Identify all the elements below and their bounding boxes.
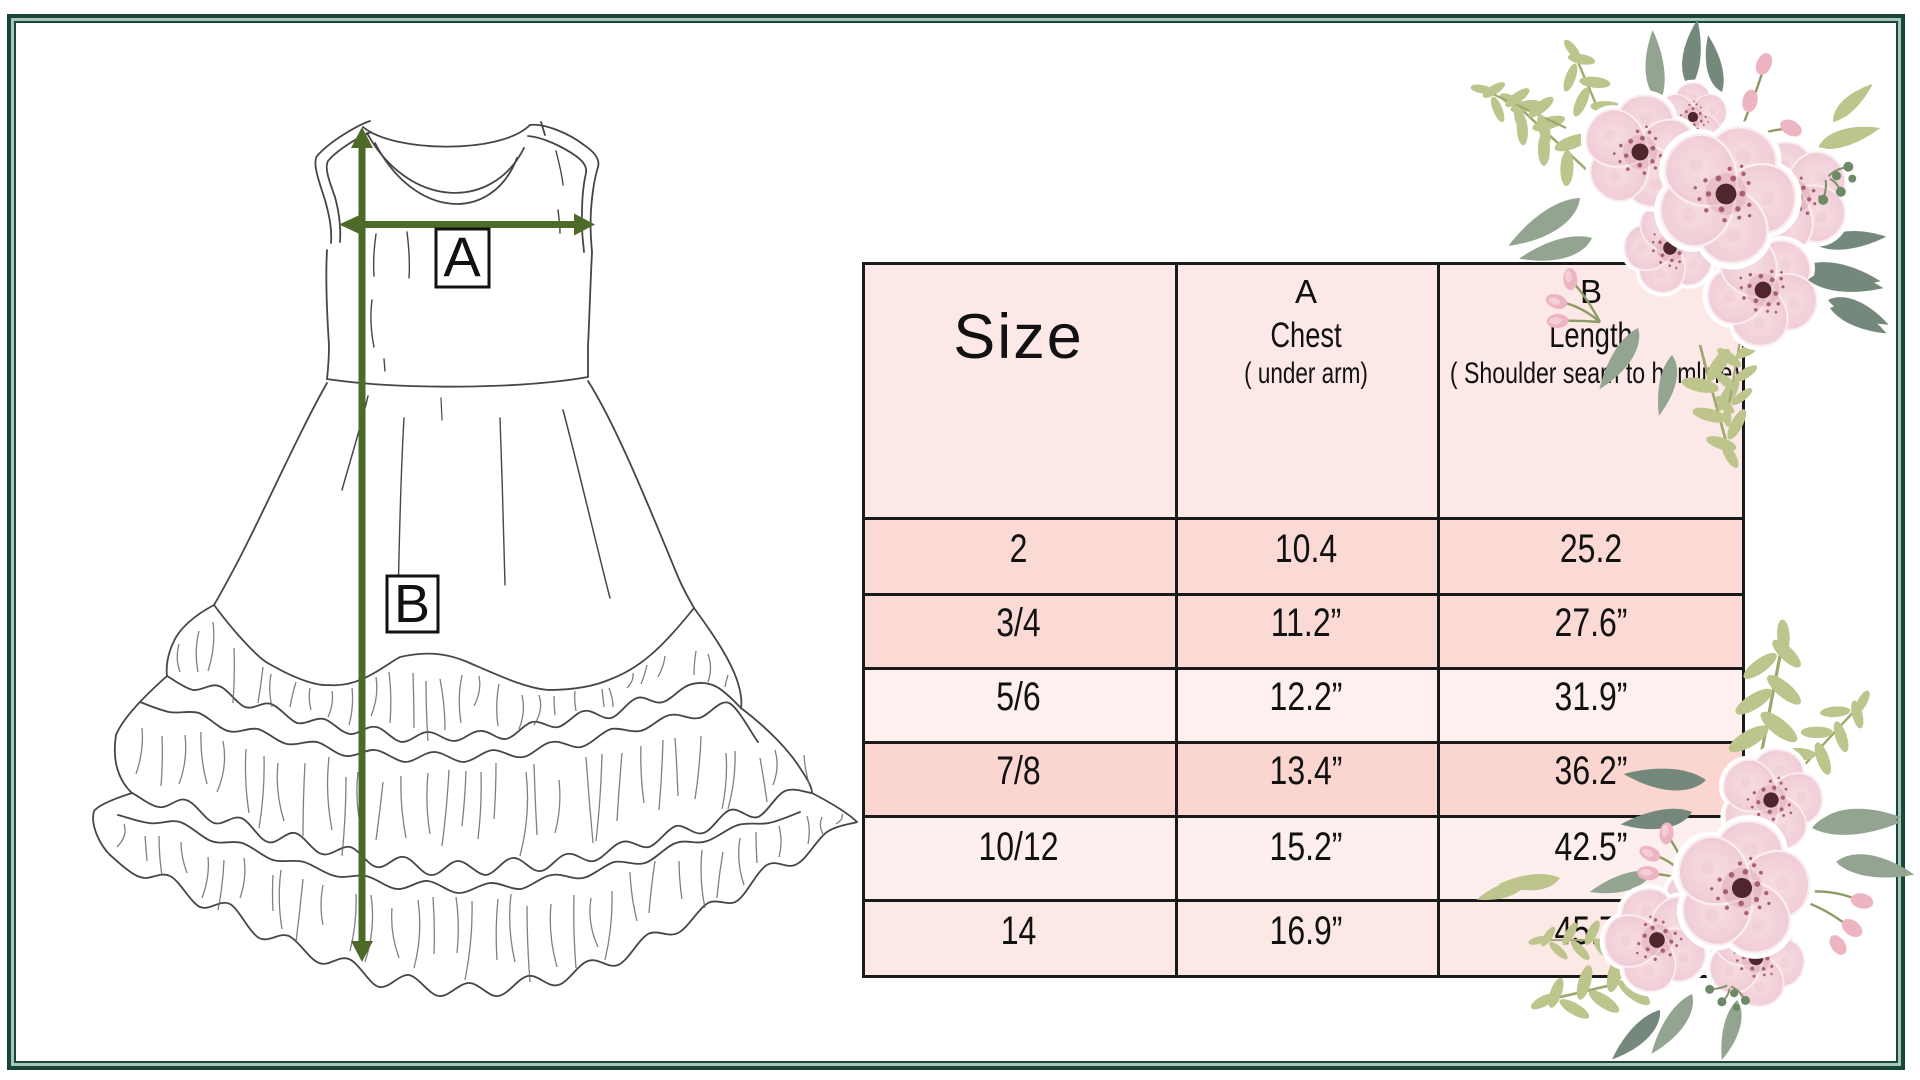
svg-text:B: B bbox=[394, 574, 430, 634]
svg-text:A: A bbox=[443, 225, 481, 288]
